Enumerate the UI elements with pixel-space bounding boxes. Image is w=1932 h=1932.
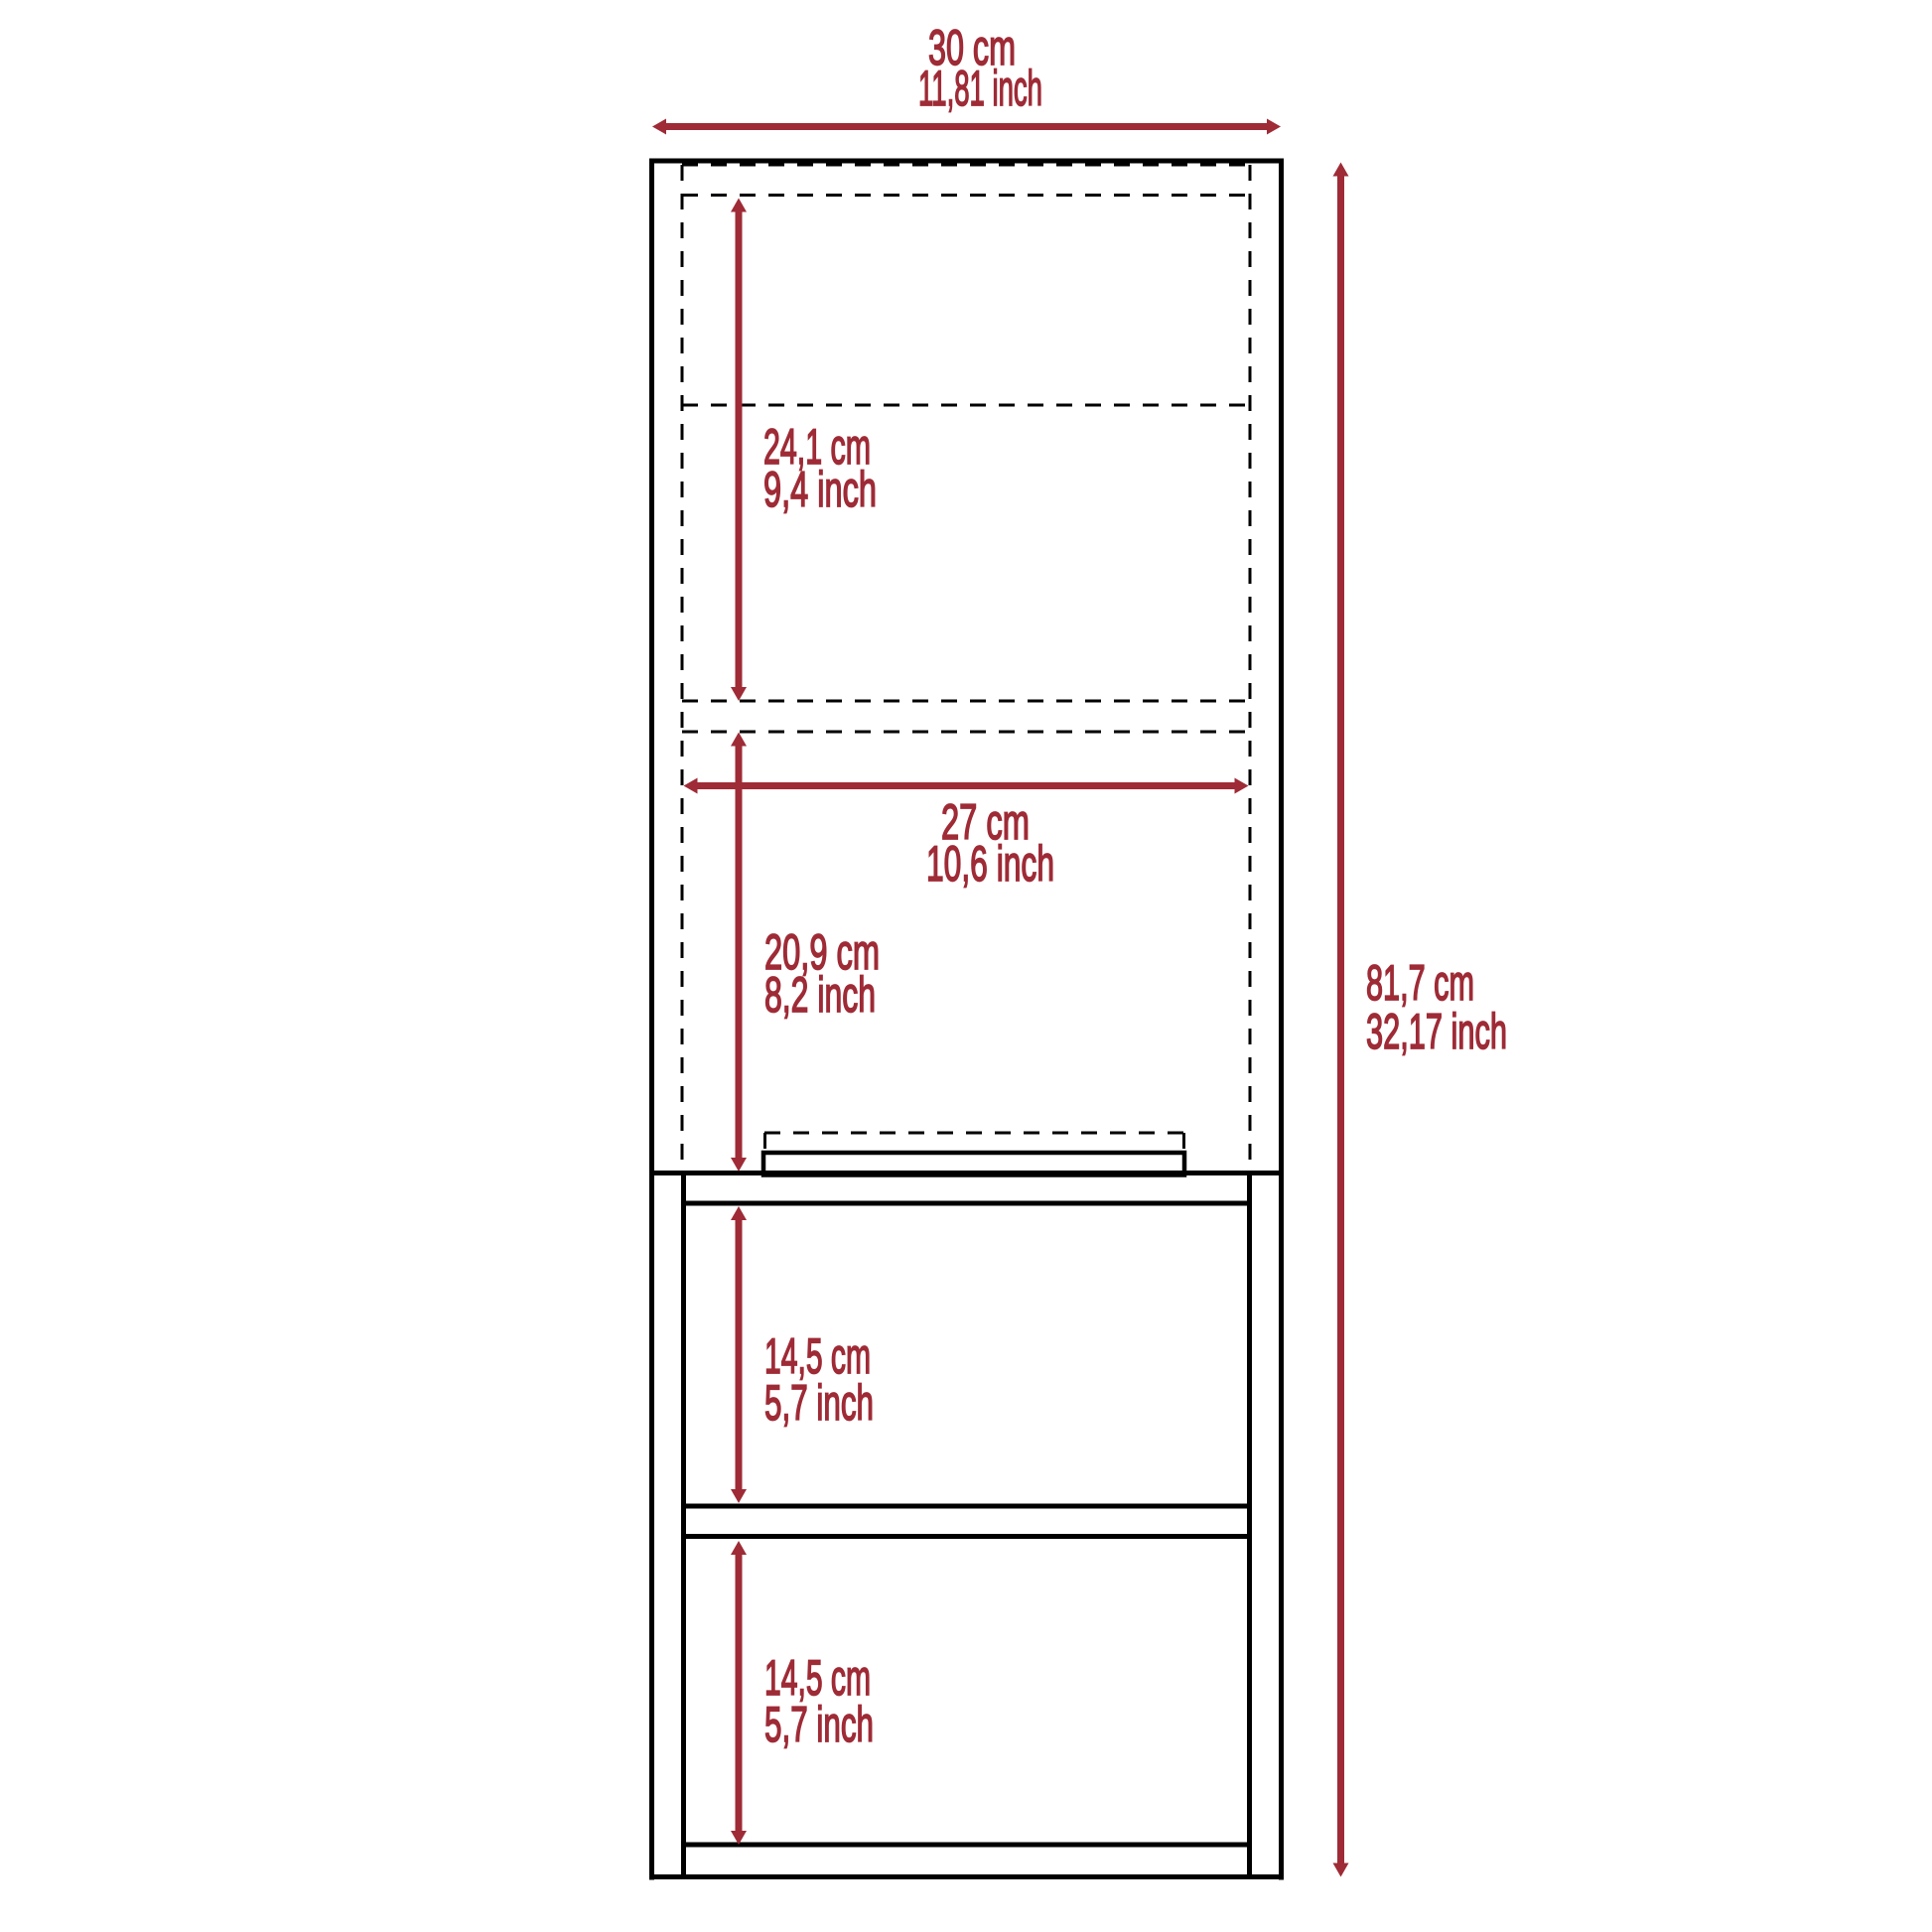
svg-text:10,6 inch: 10,6 inch (926, 836, 1054, 892)
svg-text:9,4 inch: 9,4 inch (763, 462, 877, 517)
svg-text:32,17 inch: 32,17 inch (1366, 1004, 1507, 1059)
svg-text:81,7 cm: 81,7 cm (1366, 955, 1474, 1011)
svg-text:5,7 inch: 5,7 inch (764, 1375, 874, 1431)
svg-text:8,2 inch: 8,2 inch (764, 967, 876, 1023)
svg-text:11,81 inch: 11,81 inch (918, 61, 1042, 116)
svg-text:5,7 inch: 5,7 inch (764, 1697, 874, 1752)
